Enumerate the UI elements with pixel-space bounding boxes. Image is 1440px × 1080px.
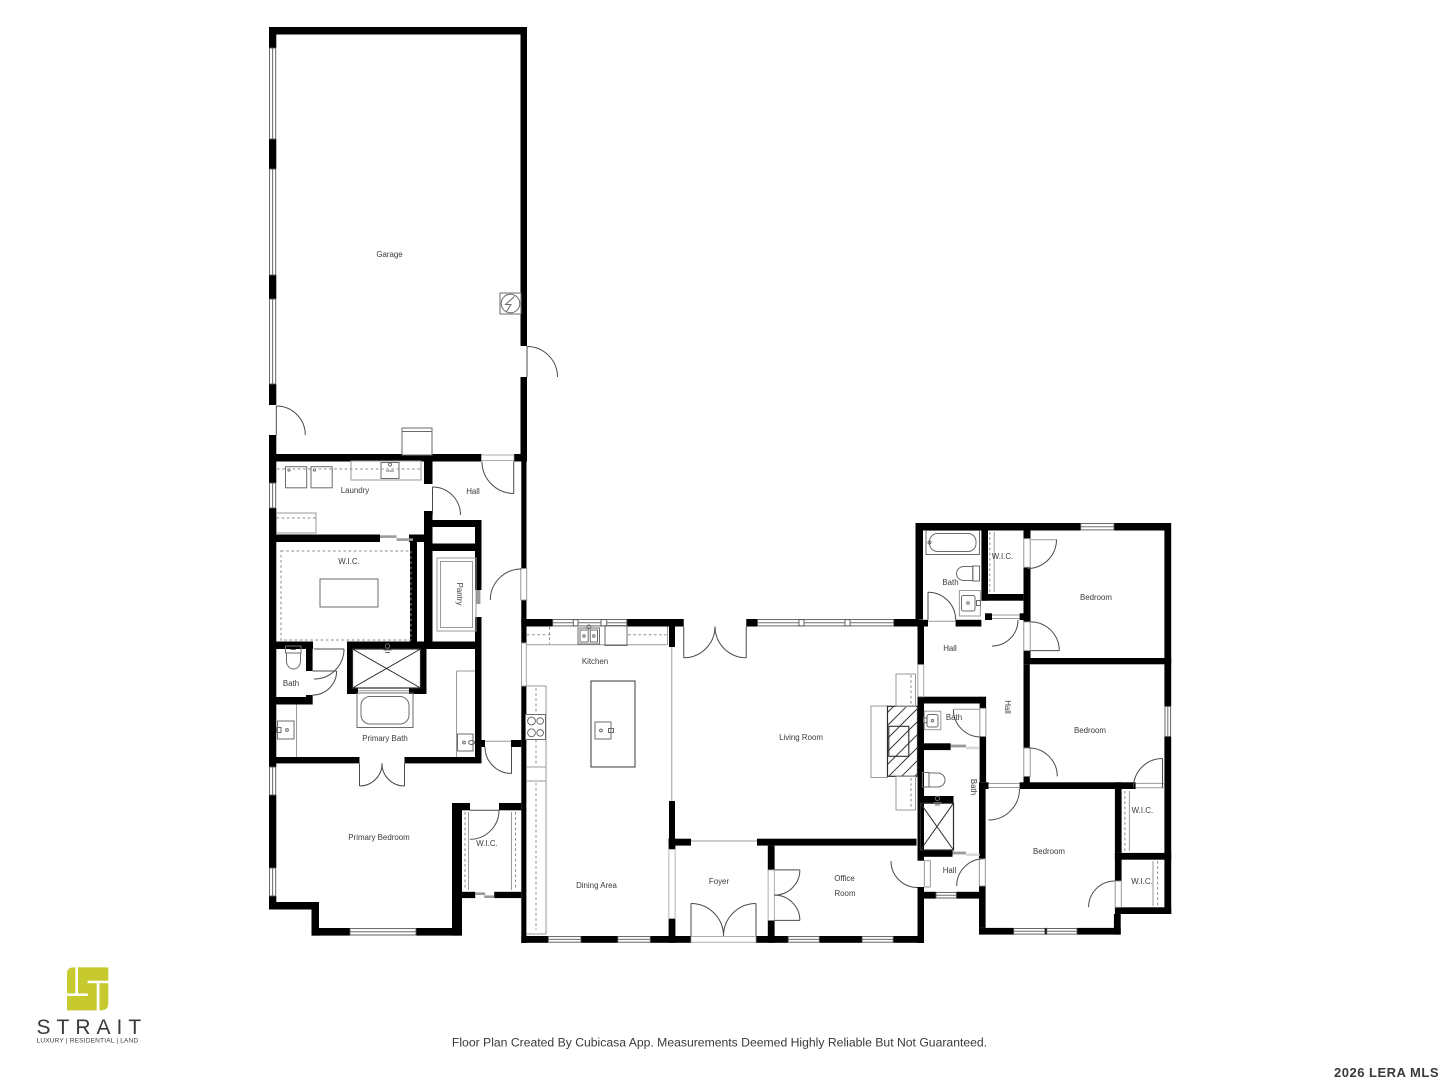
svg-text:W.I.C.: W.I.C. [338, 557, 359, 566]
svg-text:W.I.C.: W.I.C. [1131, 877, 1152, 886]
svg-text:Bedroom: Bedroom [1080, 593, 1112, 602]
svg-text:Primary Bedroom: Primary Bedroom [348, 833, 410, 842]
svg-text:Bath: Bath [283, 679, 299, 688]
svg-text:Bath: Bath [946, 713, 962, 722]
svg-text:Laundry: Laundry [341, 486, 370, 495]
svg-text:Bath: Bath [969, 779, 978, 795]
svg-text:W.I.C.: W.I.C. [1132, 806, 1153, 815]
svg-text:Room: Room [834, 889, 855, 898]
svg-text:Bedroom: Bedroom [1033, 847, 1065, 856]
svg-text:W.I.C.: W.I.C. [476, 839, 497, 848]
svg-text:Hall: Hall [943, 644, 957, 653]
svg-text:Office: Office [834, 874, 855, 883]
svg-text:Hall: Hall [466, 487, 480, 496]
svg-text:2026 LERA MLS: 2026 LERA MLS [1334, 1065, 1439, 1080]
svg-text:Kitchen: Kitchen [582, 657, 608, 666]
svg-text:Primary Bath: Primary Bath [362, 734, 408, 743]
svg-text:Bath: Bath [942, 578, 958, 587]
svg-text:Bedroom: Bedroom [1074, 726, 1106, 735]
svg-text:W.I.C.: W.I.C. [992, 552, 1013, 561]
svg-text:STRAIT: STRAIT [37, 1016, 148, 1039]
svg-text:Foyer: Foyer [709, 877, 730, 886]
svg-text:Living Room: Living Room [779, 733, 823, 742]
svg-text:Pantry: Pantry [455, 583, 464, 606]
svg-text:Hall: Hall [943, 866, 957, 875]
svg-text:Dining Area: Dining Area [576, 881, 617, 890]
svg-text:Garage: Garage [376, 250, 403, 259]
svg-text:Hall: Hall [1003, 700, 1012, 714]
svg-text:Floor Plan Created By Cubicasa: Floor Plan Created By Cubicasa App. Meas… [452, 1036, 987, 1050]
svg-text:LUXURY | RESIDENTIAL | LAND: LUXURY | RESIDENTIAL | LAND [37, 1038, 139, 1045]
